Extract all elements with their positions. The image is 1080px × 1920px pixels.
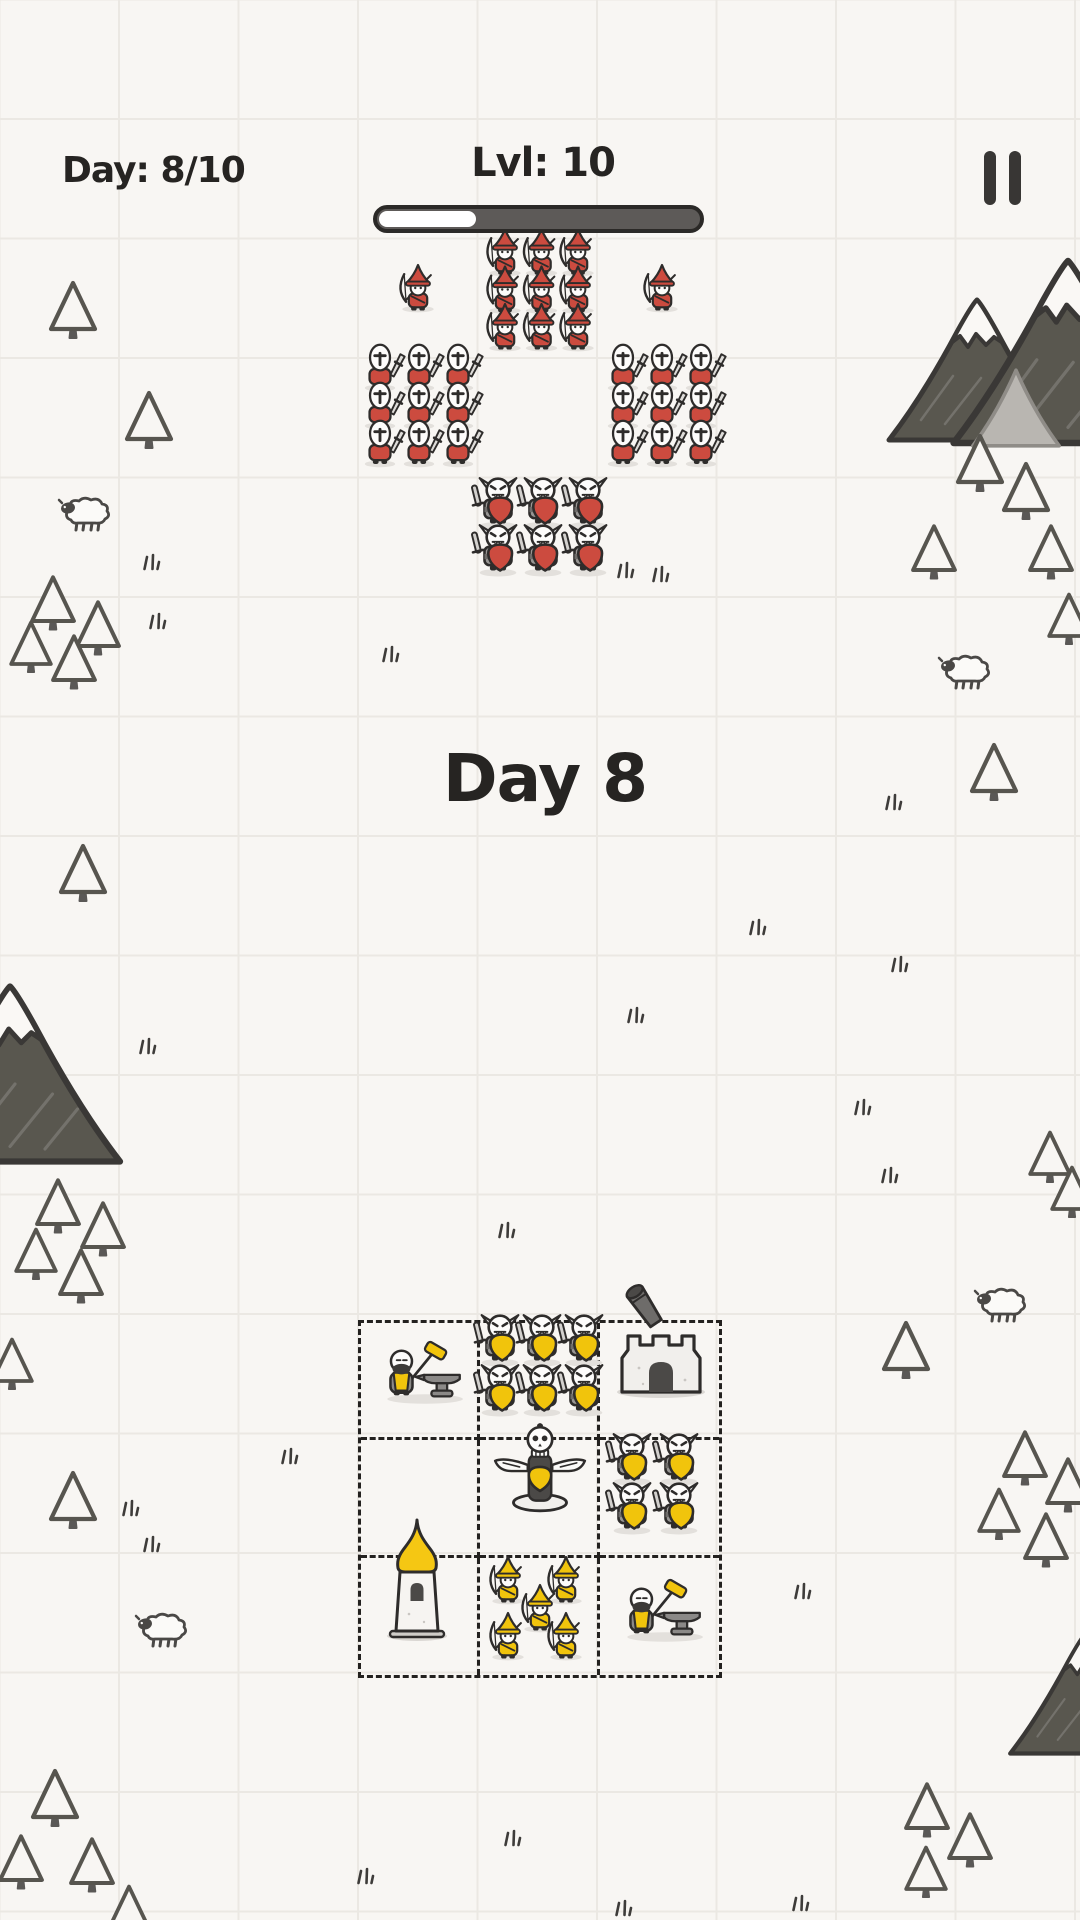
grass-tuft: [893, 957, 908, 971]
enemy-archer: [560, 267, 593, 314]
grass-tuft: [751, 920, 766, 934]
pine-tree: [11, 623, 51, 673]
pine-tree: [1052, 1168, 1080, 1218]
pine-tree: [906, 1848, 946, 1898]
pine-tree: [1049, 595, 1080, 645]
pine-tree: [979, 1490, 1019, 1540]
grass-tuft: [283, 1449, 298, 1463]
pine-tree: [1025, 1514, 1067, 1566]
grass-tuft: [359, 1869, 374, 1883]
game-background: Day: 8/10 Lvl: 10 Day 8: [0, 0, 1080, 1920]
mountain: [889, 300, 1065, 440]
pine-tree: [1047, 1459, 1080, 1511]
grass-tuft: [617, 1901, 632, 1915]
day-counter: Day: 8/10: [62, 150, 245, 191]
enemy-swordsman-left: [404, 345, 444, 392]
enemy-shield-warrior: [468, 478, 516, 529]
sheep: [939, 656, 989, 688]
board-cell-r1c2[interactable]: [600, 1440, 719, 1557]
enemy-archer: [524, 267, 557, 314]
pause-button[interactable]: [972, 144, 1032, 212]
pine-tree: [71, 1839, 113, 1891]
enemy-archer-flank-right: [644, 265, 677, 312]
pine-tree: [51, 1473, 95, 1528]
enemy-shield-warrior: [513, 478, 561, 529]
pine-tree: [61, 846, 105, 901]
grass-tuft: [124, 1501, 139, 1515]
enemy-swordsman-right: [608, 383, 648, 430]
pine-tree: [1004, 464, 1048, 519]
pine-tree: [82, 1203, 124, 1255]
player-board[interactable]: [358, 1320, 722, 1678]
enemy-swordsman-right: [608, 421, 648, 468]
mountain: [0, 987, 120, 1162]
level-progress-bar: [373, 205, 704, 233]
grass-tuft: [619, 563, 634, 577]
grass-tuft: [887, 795, 902, 809]
enemy-swordsman-right: [647, 383, 687, 430]
pine-tree: [884, 1323, 928, 1378]
day-banner: Day 8: [443, 740, 647, 817]
enemy-shield-warrior: [558, 525, 606, 576]
grass-tuft: [141, 1039, 156, 1053]
pine-tree: [16, 1230, 56, 1280]
enemy-archer: [560, 229, 593, 276]
enemy-shield-warrior: [558, 478, 606, 529]
enemy-archer: [487, 304, 520, 351]
pine-tree: [958, 436, 1002, 491]
pine-tree: [60, 1250, 102, 1302]
enemy-swordsman-right: [647, 345, 687, 392]
pine-tree: [913, 526, 955, 578]
sheep: [136, 1614, 186, 1646]
enemy-archer: [524, 229, 557, 276]
pause-icon: [984, 151, 996, 205]
enemy-archer: [560, 304, 593, 351]
grass-tuft: [629, 1008, 644, 1022]
grass-tuft: [856, 1100, 871, 1114]
pine-tree: [906, 1784, 948, 1836]
board-cell-r1c1[interactable]: [480, 1440, 599, 1557]
enemy-swordsman-right: [686, 383, 726, 430]
enemy-swordsman-left: [404, 383, 444, 430]
level-progress-fill: [379, 211, 476, 227]
grass-tuft: [384, 647, 399, 661]
mountain: [954, 261, 1080, 443]
enemy-swordsman-right: [608, 345, 648, 392]
grass-tuft: [794, 1896, 809, 1910]
grass-tuft: [500, 1223, 515, 1237]
enemy-swordsman-left: [443, 345, 483, 392]
pine-tree: [32, 577, 74, 629]
enemy-archer: [487, 267, 520, 314]
pine-tree: [53, 636, 95, 688]
enemy-swordsman-left: [443, 383, 483, 430]
enemy-swordsman-left: [404, 421, 444, 468]
pine-tree: [109, 1887, 149, 1920]
board-cell-r2c2[interactable]: [600, 1558, 719, 1675]
pine-tree: [51, 283, 95, 338]
enemy-archer: [524, 304, 557, 351]
pine-tree: [972, 745, 1016, 800]
enemy-archer-flank-left: [400, 265, 433, 312]
board-cell-r1c0[interactable]: [361, 1440, 480, 1557]
board-cell-r0c0[interactable]: [361, 1323, 480, 1440]
enemy-swordsman-right: [686, 421, 726, 468]
enemy-swordsman-right: [647, 421, 687, 468]
enemy-swordsman-left: [365, 421, 405, 468]
enemy-archer: [487, 229, 520, 276]
pine-tree: [37, 1180, 79, 1232]
pine-tree: [127, 393, 171, 448]
pine-tree: [949, 1814, 991, 1866]
pine-tree: [1030, 526, 1072, 578]
grass-tuft: [145, 555, 160, 569]
enemy-shield-warrior: [468, 525, 516, 576]
grass-tuft: [506, 1831, 521, 1845]
enemy-shield-warrior: [513, 525, 561, 576]
grass-tuft: [654, 567, 669, 581]
grass-tuft: [883, 1168, 898, 1182]
board-cell-r2c0[interactable]: [361, 1558, 480, 1675]
mountain-light: [973, 370, 1059, 446]
pine-tree: [1004, 1432, 1046, 1484]
pause-icon: [1009, 151, 1021, 205]
pine-tree: [0, 1340, 32, 1390]
pine-tree: [0, 1836, 42, 1888]
grass-tuft: [151, 614, 166, 628]
sheep: [975, 1289, 1025, 1321]
pine-tree: [77, 602, 119, 654]
board-cell-r2c1[interactable]: [480, 1558, 599, 1675]
board-cell-r0c2[interactable]: [600, 1323, 719, 1440]
pine-tree: [33, 1771, 77, 1826]
grass-tuft: [796, 1584, 811, 1598]
grass-tuft: [145, 1537, 160, 1551]
mountain: [1010, 1635, 1080, 1754]
enemy-swordsman-left: [443, 421, 483, 468]
sheep: [59, 498, 109, 530]
enemy-swordsman-right: [686, 345, 726, 392]
enemy-swordsman-left: [365, 383, 405, 430]
enemy-swordsman-left: [365, 345, 405, 392]
board-cell-r0c1[interactable]: [480, 1323, 599, 1440]
level-label: Lvl: 10: [471, 140, 615, 186]
pine-tree: [1030, 1133, 1070, 1183]
